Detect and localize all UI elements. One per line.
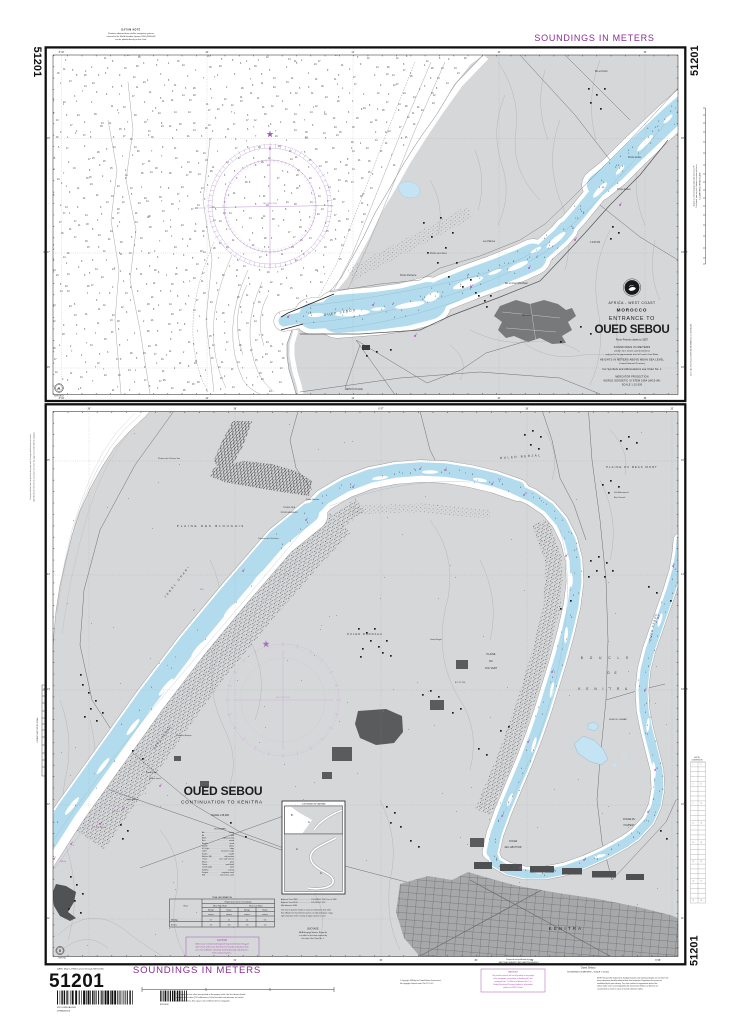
svg-text:meters: meters (244, 913, 250, 916)
svg-text:APPROACH: APPROACH (54, 395, 64, 398)
svg-text:39': 39' (87, 408, 91, 411)
svg-text:To ensure that this chart was: To ensure that this chart was printed at… (176, 993, 245, 996)
svg-text:than official U.S. Government: than official U.S. Government sources; a… (281, 912, 333, 915)
svg-text:VAR 2 30W (1996): VAR 2 30W (1996) (263, 202, 277, 205)
svg-text:(Under 10 in meters and decime: (Under 10 in meters and decimeters) (614, 350, 650, 353)
svg-text:LOGARITHMIC SPEED SCALE: LOGARITHMIC SPEED SCALE (36, 716, 39, 742)
svg-text:2.1: 2.1 (228, 919, 231, 921)
svg-text:ridge: ridge (230, 847, 234, 850)
svg-text:15': 15' (47, 459, 51, 462)
svg-text:Fl G 2.5s 9m 5M: Fl G 2.5s 9m 5M (92, 827, 106, 829)
svg-text:this chart. See Chart No. 1.: this chart. See Chart No. 1. (302, 937, 325, 940)
svg-text:MOROCCO: MOROCCO (617, 308, 648, 313)
svg-text:is in effect in the area cover: is in effect in the area covered by (299, 934, 327, 937)
svg-text:elbow: elbow (229, 845, 235, 847)
svg-text:2.7: 2.7 (210, 919, 213, 921)
svg-text:aid to navigation, particularl: aid to navigation, particularly on float… (493, 977, 533, 980)
svg-text:1.3: 1.3 (246, 925, 249, 927)
svg-text:Mechra (M): Mechra (M) (202, 855, 212, 858)
svg-text:reduced to the approximate lev: reduced to the approximate level of Lowe… (606, 353, 659, 356)
svg-text:Pointe Adrien: Pointe Adrien (617, 188, 631, 191)
svg-text:point: point (230, 866, 235, 869)
svg-text:B.T. 27 CM.: B.T. 27 CM. (455, 682, 466, 684)
svg-text:38': 38' (233, 408, 237, 411)
svg-text:OULED RADDAHA: OULED RADDAHA (347, 632, 383, 636)
svg-text:From French charts to 1957: From French charts to 1957 (616, 338, 649, 342)
svg-text:KENITRA: KENITRA (549, 926, 583, 931)
svg-text:spring: spring (229, 831, 234, 834)
svg-text:Neaps: Neaps (226, 910, 231, 912)
svg-text:Pointe Bombar: Pointe Bombar (306, 498, 320, 501)
svg-text:MEHDYA PLAGE: MEHDYA PLAGE (345, 388, 363, 391)
svg-text:Mehdiya: Mehdiya (171, 919, 178, 921)
svg-text:Pointe Pilba: Pointe Pilba (146, 771, 158, 774)
svg-text:51201: 51201 (31, 47, 43, 78)
svg-text:1.4: 1.4 (246, 919, 249, 921)
svg-text:Cabanes des Pecheurs: Cabanes des Pecheurs (258, 538, 279, 540)
svg-text:The chart is based in whole or: The chart is based in whole or in part o… (281, 909, 331, 912)
svg-text:OUED SEBOU: OUED SEBOU (184, 784, 263, 798)
svg-text:No copyright claimed under Tit: No copyright claimed under Title 17 U.S.… (400, 982, 434, 985)
svg-text:12': 12' (681, 803, 685, 806)
svg-text:Bel el Ghazi: Bel el Ghazi (595, 71, 608, 73)
svg-text:Bir: Bir (202, 834, 205, 837)
svg-text:B: B (59, 949, 62, 953)
svg-text:A: A (296, 847, 298, 851)
svg-text:meters: meters (226, 913, 232, 916)
svg-text:relative to DGPS Charts.: relative to DGPS Charts. (503, 986, 523, 989)
svg-text:DATUM NOTE: DATUM NOTE (121, 29, 140, 32)
svg-text:Pointe au Barque: Pointe au Barque (176, 734, 192, 737)
svg-text:MERCATOR PROJECTION: MERCATOR PROJECTION (615, 376, 648, 379)
svg-text:Differences in latitude and lo: Differences in latitude and longitude ma… (195, 943, 248, 946)
svg-text:40': 40' (497, 51, 501, 54)
svg-text:A: A (320, 871, 322, 875)
svg-text:0575 D4920 A07065: 0575 D4920 A07065 (57, 1006, 77, 1009)
svg-text:AFRICA - WEST COAST: AFRICA - WEST COAST (608, 301, 655, 305)
svg-text:42': 42' (205, 397, 209, 400)
svg-text:Pointe Fetiss: Pointe Fetiss (628, 156, 642, 159)
svg-text:Jebel: Jebel (202, 851, 207, 853)
svg-text:established by the port author: established by the port authority. This … (597, 982, 657, 985)
svg-text:The prudent mariner will not r: The prudent mariner will not rely solely… (492, 974, 534, 977)
svg-text:paragraph No. 7 of Notice to M: paragraph No. 7 of Notice to Mariners No… (495, 980, 532, 983)
svg-text:citadel: citadel (229, 852, 235, 855)
svg-text:For Symbols and Abbreviations: For Symbols and Abbreviations see Chart … (602, 367, 662, 371)
svg-text:mountain range: mountain range (221, 850, 234, 853)
svg-text:30': 30' (379, 959, 383, 962)
svg-text:Fl R 4s: Fl R 4s (112, 811, 118, 813)
svg-text:rolling country: rolling country (222, 837, 234, 840)
svg-text:BT91003: BT91003 (160, 1004, 169, 1006)
svg-text:41': 41' (351, 51, 355, 54)
svg-text:18': 18' (47, 137, 51, 140)
svg-text:Les Palmes: Les Palmes (483, 241, 496, 243)
svg-text:1:230 OM: 1:230 OM (590, 242, 600, 244)
svg-text:B: B (291, 813, 293, 817)
svg-text:Coude: Coude (202, 845, 208, 847)
svg-text:Mean Low Water: Mean Low Water (249, 904, 263, 907)
svg-text:WARNING: WARNING (508, 971, 518, 974)
svg-text:CONTINUATION TO KENITRA: CONTINUATION TO KENITRA (181, 800, 263, 805)
svg-text:Plaine: Plaine (202, 861, 207, 863)
svg-text:40': 40' (497, 397, 501, 400)
svg-text:Springs: Springs (208, 910, 214, 912)
svg-text:SCALE 1:15,000: SCALE 1:15,000 (622, 384, 643, 387)
svg-text:42': 42' (205, 51, 209, 54)
svg-text:COUDE: COUDE (509, 841, 518, 843)
svg-text:MEHDIA: MEHDIA (522, 313, 532, 317)
svg-text:COL VERT: COL VERT (485, 667, 498, 670)
svg-text:Prepared and published by the: Prepared and published by the (506, 958, 532, 961)
svg-text:ENTRANCE TO: ENTRANCE TO (609, 316, 655, 322)
svg-text:FOUHEST: FOUHEST (624, 825, 636, 827)
svg-text:CONTINUATION DIAGRAM: CONTINUATION DIAGRAM (302, 802, 326, 805)
svg-text:Height above datum of sounding: Height above datum of soundings (225, 900, 252, 903)
svg-text:6°43': 6°43' (59, 51, 65, 54)
svg-text:Oued Sebou: Oued Sebou (581, 965, 596, 969)
svg-text:34°17': 34°17' (43, 251, 50, 254)
svg-text:51201: 51201 (689, 45, 701, 76)
svg-text:DEPTH: DEPTH (694, 757, 700, 759)
svg-text:12': 12' (47, 803, 51, 806)
svg-text:SOUNDINGS IN METERS: SOUNDINGS IN METERS (133, 965, 261, 976)
svg-text:0.6: 0.6 (264, 919, 267, 921)
svg-text:Fl G: Fl G (200, 589, 204, 591)
svg-text:KENITRA: KENITRA (58, 957, 66, 960)
svg-text:Pointe Pachena: Pointe Pachena (400, 274, 417, 277)
svg-text:SOUNDINGS IN METERS: SOUNDINGS IN METERS (534, 33, 654, 43)
svg-text:A: A (308, 820, 310, 824)
svg-text:Plateau des Chenes Sun: Plateau des Chenes Sun (158, 457, 180, 460)
svg-text:6°28': 6°28' (655, 959, 661, 962)
svg-text:Kenitra: Kenitra (171, 924, 177, 927)
svg-text:old junction: old junction (224, 855, 234, 858)
svg-text:PLAINE: PLAINE (487, 653, 496, 656)
svg-text:GLOSSARY: GLOSSARY (214, 828, 227, 831)
svg-text:15': 15' (681, 459, 685, 462)
svg-text:Ain: Ain (202, 831, 205, 834)
svg-text:SCALE 1:15,000: SCALE 1:15,000 (211, 814, 229, 817)
svg-text:34°17': 34°17' (681, 251, 688, 254)
svg-text:Springs: Springs (244, 910, 250, 912)
svg-text:34°13': 34°13' (681, 688, 688, 691)
svg-text:BLED EL OHRAR: BLED EL OHRAR (609, 718, 627, 721)
svg-text:IALA Buoyage System, Region A,: IALA Buoyage System, Region A, (299, 931, 328, 934)
svg-text:WORLD GEODETIC SYSTEM 1984 (WG: WORLD GEODETIC SYSTEM 1984 (WGS-84) (604, 380, 661, 383)
svg-text:Plaque forme: Plaque forme (149, 778, 162, 780)
svg-text:Pointe: Pointe (202, 863, 207, 866)
svg-text:(152 millimeters), this copy i: (152 millimeters), this copy is not cert… (176, 999, 231, 1002)
svg-text:18': 18' (681, 137, 685, 140)
svg-text:Bou: Bou (202, 840, 205, 842)
svg-text:39': 39' (643, 397, 647, 400)
svg-text:COURS DES: COURS DES (283, 507, 296, 509)
svg-text:TIDAL INFORMATION: TIDAL INFORMATION (212, 896, 233, 899)
svg-text:Positions obtained from satell: Positions obtained from satellite naviga… (108, 32, 154, 35)
svg-text:latest information should be o: latest information should be obtained fr… (597, 979, 662, 982)
svg-text:51201: 51201 (49, 971, 104, 992)
svg-text:Place: Place (183, 906, 188, 908)
svg-text:Bel el Ghazi Mehdiawi: Bel el Ghazi Mehdiawi (505, 283, 528, 285)
svg-text:TROIS PALMIERS: TROIS PALMIERS (280, 511, 298, 514)
svg-text:NATIONAL IMAGERY AND MAPPING A: NATIONAL IMAGERY AND MAPPING AGENCY (499, 961, 540, 964)
svg-text:from common features.: from common features. (212, 952, 232, 955)
svg-text:can be plotted directly on thi: can be plotted directly on this chart. (115, 38, 147, 41)
svg-text:other charts of the area; ther: other charts of the area; therefore, the… (195, 946, 249, 949)
svg-text:plain: plain (230, 861, 234, 863)
svg-text:right restrictions of the coun: right restrictions of the country of ori… (281, 915, 326, 918)
svg-text:B O U C L E: B O U C L E (581, 656, 631, 660)
svg-text:mixed: mixed (229, 840, 234, 842)
svg-text:Contour Interval 20 meters: Contour Interval 20 meters (619, 362, 646, 365)
svg-text:Sequia: Sequia (202, 872, 209, 874)
svg-text:Adjacent Chart 8140...........: Adjacent Chart 8140.....................… (281, 901, 326, 904)
svg-text:DE L'ABATTOIR: DE L'ABATTOIR (505, 846, 522, 849)
svg-text:35': 35' (670, 408, 674, 411)
svg-text:6°37': 6°37' (378, 408, 384, 411)
svg-text:39': 39' (643, 51, 647, 54)
svg-text:2.6: 2.6 (228, 925, 231, 927)
svg-text:CONVERSION: CONVERSION (692, 759, 704, 761)
svg-text:31': 31' (233, 959, 237, 962)
svg-text:Usine Bergol: Usine Bergol (430, 639, 442, 641)
svg-text:Sidi Mohammed: Sidi Mohammed (614, 492, 628, 494)
svg-text:14': 14' (47, 573, 51, 576)
svg-text:referred to the World Geodetic: referred to the World Geodetic System 19… (107, 35, 156, 38)
svg-text:inshore traffic zones as promu: inshore traffic zones as promulgated by … (597, 985, 658, 988)
svg-text:5TBRA45120I: 5TBRA45120I (57, 1009, 70, 1012)
svg-text:A: A (58, 386, 61, 391)
svg-text:CAUTION: CAUTION (217, 939, 228, 942)
svg-text:meters: meters (208, 913, 214, 916)
svg-text:Pointe Adrien: Pointe Adrien (126, 798, 138, 801)
svg-text:16': 16' (681, 366, 685, 369)
svg-text:Adjacent Chart 5889...........: Adjacent Chart 5889.....................… (281, 898, 336, 901)
svg-text:NOTE: Except within harbor lim: NOTE: Except within harbor limits, dredg… (597, 977, 669, 980)
svg-text:cautioned not to anchor in are: cautioned not to anchor in areas of char… (597, 987, 644, 990)
svg-text:SOUNDINGS IN METERS - SCALE 1:: SOUNDINGS IN METERS - SCALE 1:15,000 (567, 970, 610, 973)
svg-text:Fl(2) 6s: Fl(2) 6s (60, 861, 66, 863)
svg-text:Mean High Water: Mean High Water (213, 904, 227, 907)
svg-text:VAR 2 30W (1996): VAR 2 30W (1996) (276, 696, 290, 699)
svg-text:monument, saint: monument, saint (220, 874, 234, 877)
svg-text:Pointe aux Anes: Pointe aux Anes (430, 252, 447, 255)
svg-text:COUDE DU: COUDE DU (623, 819, 636, 821)
svg-text:PLAINE DU BEAS MORT: PLAINE DU BEAS MORT (606, 465, 658, 469)
svg-text:OUED SEBOU: OUED SEBOU (595, 323, 670, 336)
svg-text:DU: DU (489, 660, 493, 663)
svg-text:BUOYAGE: BUOYAGE (307, 928, 319, 931)
svg-text:34°13': 34°13' (43, 688, 50, 691)
svg-text:Neaps: Neaps (262, 910, 267, 912)
svg-text:K E N I T R A: K E N I T R A (578, 687, 629, 691)
svg-text:Miscellaneous 5040: Miscellaneous 5040 (281, 905, 297, 907)
svg-text:meters: meters (262, 913, 268, 916)
svg-text:1 Copyright 1996 by the Unite: 1 Copyright 1996 by the United States Go… (400, 979, 442, 982)
svg-text:HEIGHTS IN METERS ABOVE MEAN S: HEIGHTS IN METERS ABOVE MEAN SEA LEVEL (600, 359, 665, 362)
svg-text:one chart to another should be: one chart to another should be done by b… (196, 949, 249, 952)
svg-text:river, wide stream: river, wide stream (219, 858, 234, 861)
svg-text:Ouede (pte): Ouede (pte) (202, 866, 212, 869)
svg-text:51201: 51201 (689, 935, 701, 966)
svg-text:16': 16' (47, 366, 51, 369)
svg-text:30': 30' (474, 959, 478, 962)
svg-text:36': 36' (525, 408, 529, 411)
svg-text:irrigation canal: irrigation canal (222, 871, 235, 874)
svg-text:3.2: 3.2 (210, 925, 213, 927)
svg-text:measure six inches (152 millim: measure six inches (152 millimeters). If… (176, 996, 244, 999)
svg-text:LOGARITHMIC SPEED SCALE: LOGARITHMIC SPEED SCALE (699, 172, 702, 200)
svg-text:D E: D E (607, 671, 618, 675)
svg-text:1.0: 1.0 (264, 925, 267, 927)
svg-text:Sailing Directions Planning Gu: Sailing Directions Planning Guides for i… (493, 983, 533, 986)
svg-text:14': 14' (681, 573, 685, 576)
svg-text:41': 41' (351, 397, 355, 400)
svg-text:Ben Youssef: Ben Youssef (614, 497, 626, 499)
